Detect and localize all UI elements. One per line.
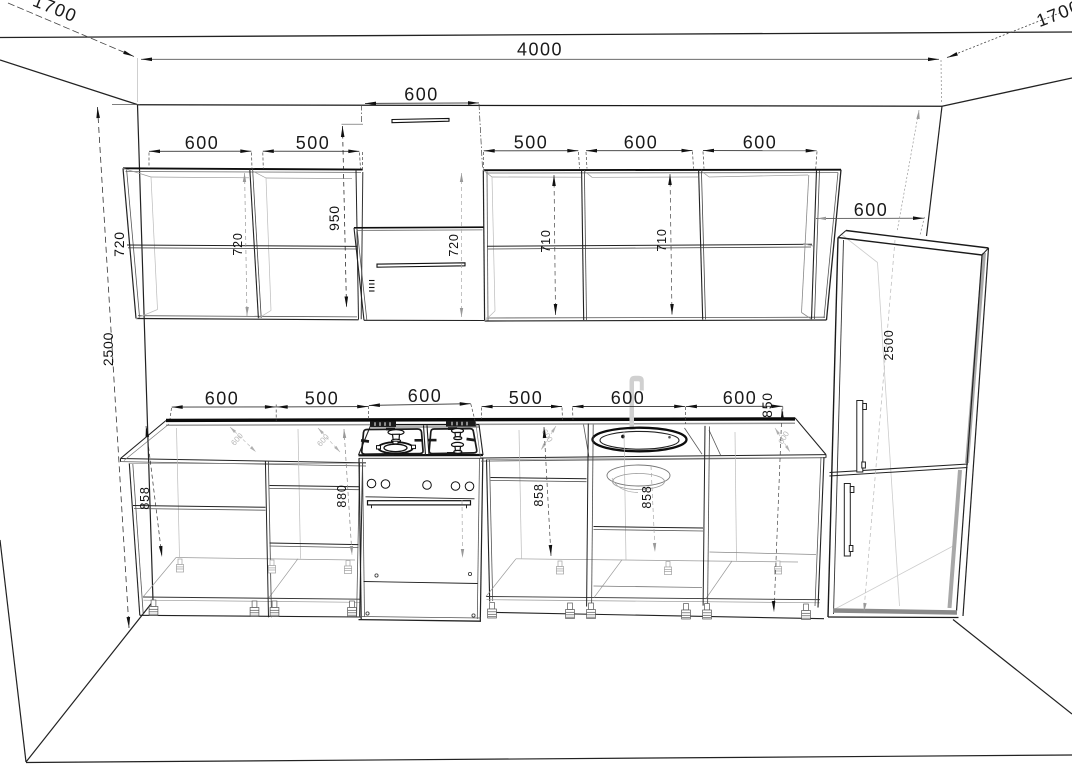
svg-text:600: 600 xyxy=(624,132,659,152)
svg-text:600: 600 xyxy=(723,388,758,408)
svg-text:880: 880 xyxy=(335,484,349,507)
svg-text:850: 850 xyxy=(759,392,775,418)
svg-text:600: 600 xyxy=(611,388,646,408)
svg-text:600: 600 xyxy=(205,389,240,409)
svg-text:600: 600 xyxy=(185,133,220,153)
svg-text:858: 858 xyxy=(640,485,654,508)
svg-text:500: 500 xyxy=(509,388,544,408)
svg-text:858: 858 xyxy=(532,483,546,506)
svg-text:500: 500 xyxy=(305,388,340,408)
svg-text:720: 720 xyxy=(231,232,245,255)
svg-text:600: 600 xyxy=(408,386,443,406)
svg-text:858: 858 xyxy=(138,486,152,509)
svg-text:600: 600 xyxy=(743,132,778,152)
svg-text:500: 500 xyxy=(296,133,331,153)
svg-text:720: 720 xyxy=(447,233,461,256)
svg-text:4000: 4000 xyxy=(517,40,563,60)
svg-text:710: 710 xyxy=(539,229,553,252)
svg-text:2500: 2500 xyxy=(100,332,116,366)
svg-text:710: 710 xyxy=(655,228,669,251)
svg-text:2500: 2500 xyxy=(882,329,896,360)
svg-text:720: 720 xyxy=(111,231,127,257)
svg-text:950: 950 xyxy=(326,205,342,231)
svg-text:600: 600 xyxy=(854,200,889,220)
svg-text:600: 600 xyxy=(404,85,439,105)
svg-text:500: 500 xyxy=(514,133,549,153)
